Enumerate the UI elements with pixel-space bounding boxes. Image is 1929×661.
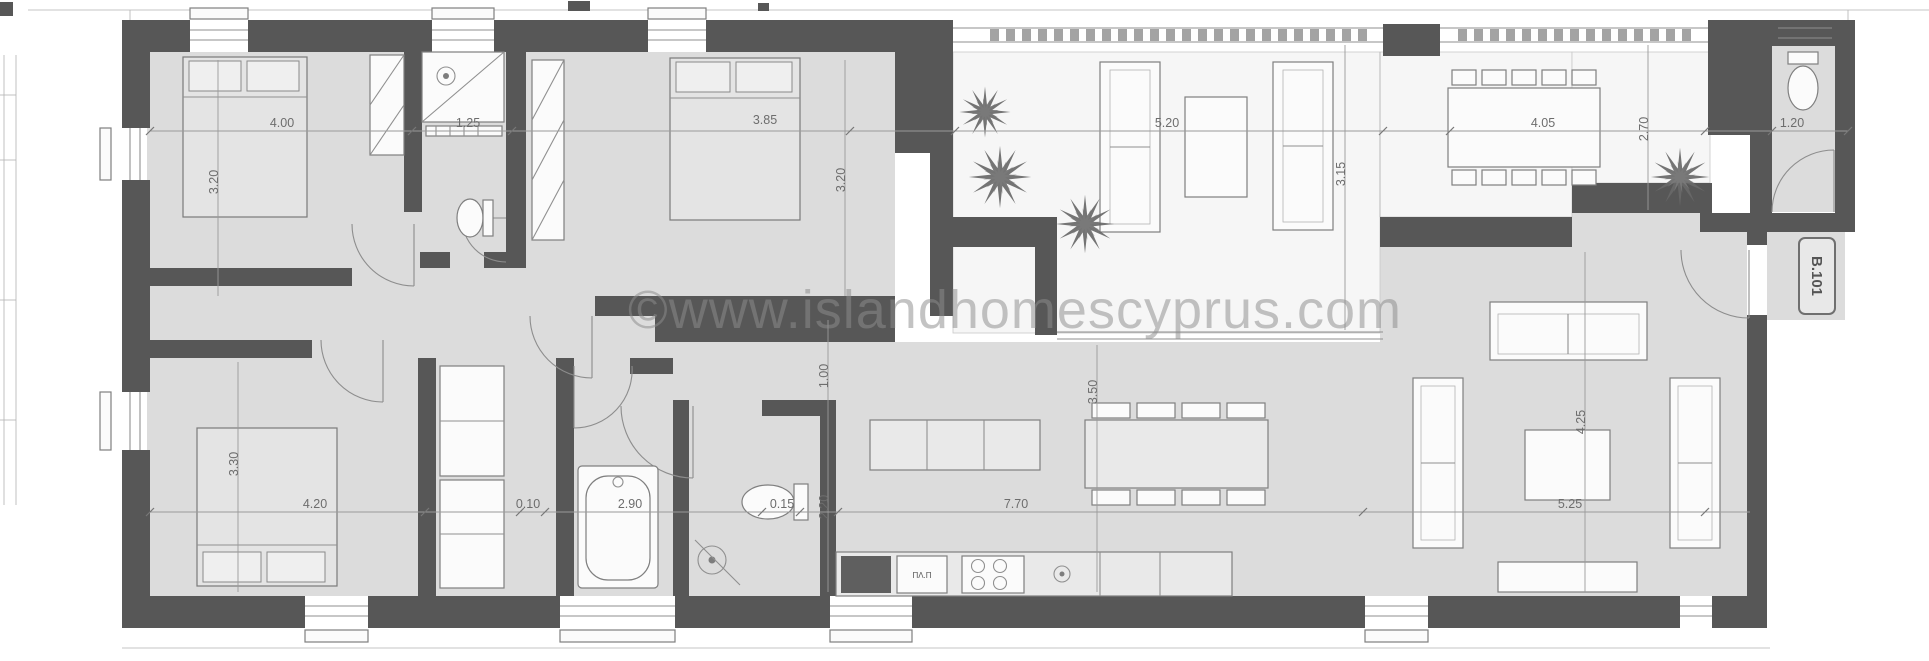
coffee-table: [1525, 430, 1610, 500]
dim-label: 4.25: [1574, 410, 1588, 434]
appliance-label: ΠΛ.Π: [912, 571, 931, 580]
dim-label: 3.15: [1334, 162, 1348, 186]
dim-label: 4.00: [270, 116, 294, 130]
dim-label: 2.20: [817, 495, 831, 519]
pillow: [736, 62, 792, 92]
outdoor-dining-table: [1448, 88, 1600, 167]
wardrobe: [370, 55, 404, 155]
pillow: [203, 552, 261, 582]
dim-label: 3.30: [227, 452, 241, 476]
dim-label: 3.50: [1086, 380, 1100, 404]
dim-label: 5.20: [1155, 116, 1179, 130]
neighbour-boundary-strip: [0, 55, 16, 505]
dining-table: [1085, 420, 1268, 488]
dim-label: 5.25: [1558, 497, 1582, 511]
dim-label: 4.20: [303, 497, 327, 511]
dim-label: 2.70: [1637, 117, 1651, 141]
pillow: [247, 61, 299, 91]
dim-label: 7.70: [1004, 497, 1028, 511]
terrace-column: [1383, 24, 1440, 56]
dim-label: 0.10: [516, 497, 540, 511]
kitchen-counter: [836, 552, 1232, 596]
floor-plan-image: ΠΛ.Π: [0, 0, 1929, 661]
entrance: B.101: [1799, 238, 1835, 314]
dim-label: 2.90: [618, 497, 642, 511]
watermark-text: ©www.islandhomescyprus.com: [628, 280, 1402, 340]
hob: [962, 556, 1024, 593]
kitchen-island: [870, 420, 1040, 470]
dim-label: 4.05: [1531, 116, 1555, 130]
oven-icon: [841, 556, 891, 593]
outdoor-table: [1185, 97, 1247, 197]
dim-label: 1.00: [817, 364, 831, 388]
terrace-pier: [895, 20, 953, 153]
pillow: [189, 61, 241, 91]
pillow: [676, 62, 730, 92]
dim-label: 3.85: [753, 113, 777, 127]
unit-badge-label: B.101: [1808, 256, 1825, 296]
toilet-icon: [1788, 66, 1818, 110]
dim-label: 3.20: [834, 168, 848, 192]
dim-label: 1.25: [456, 116, 480, 130]
pillow: [267, 552, 325, 582]
wc-top-right: [1788, 52, 1818, 110]
dim-label: 0.15: [770, 497, 794, 511]
dim-label: 3.20: [207, 170, 221, 194]
terrace-glazing: [953, 24, 1710, 56]
floor-plan-svg: ΠΛ.Π: [0, 0, 1929, 661]
tv-unit: [1498, 562, 1637, 592]
toilet-icon: [457, 199, 483, 237]
dim-label: 1.20: [1780, 116, 1804, 130]
